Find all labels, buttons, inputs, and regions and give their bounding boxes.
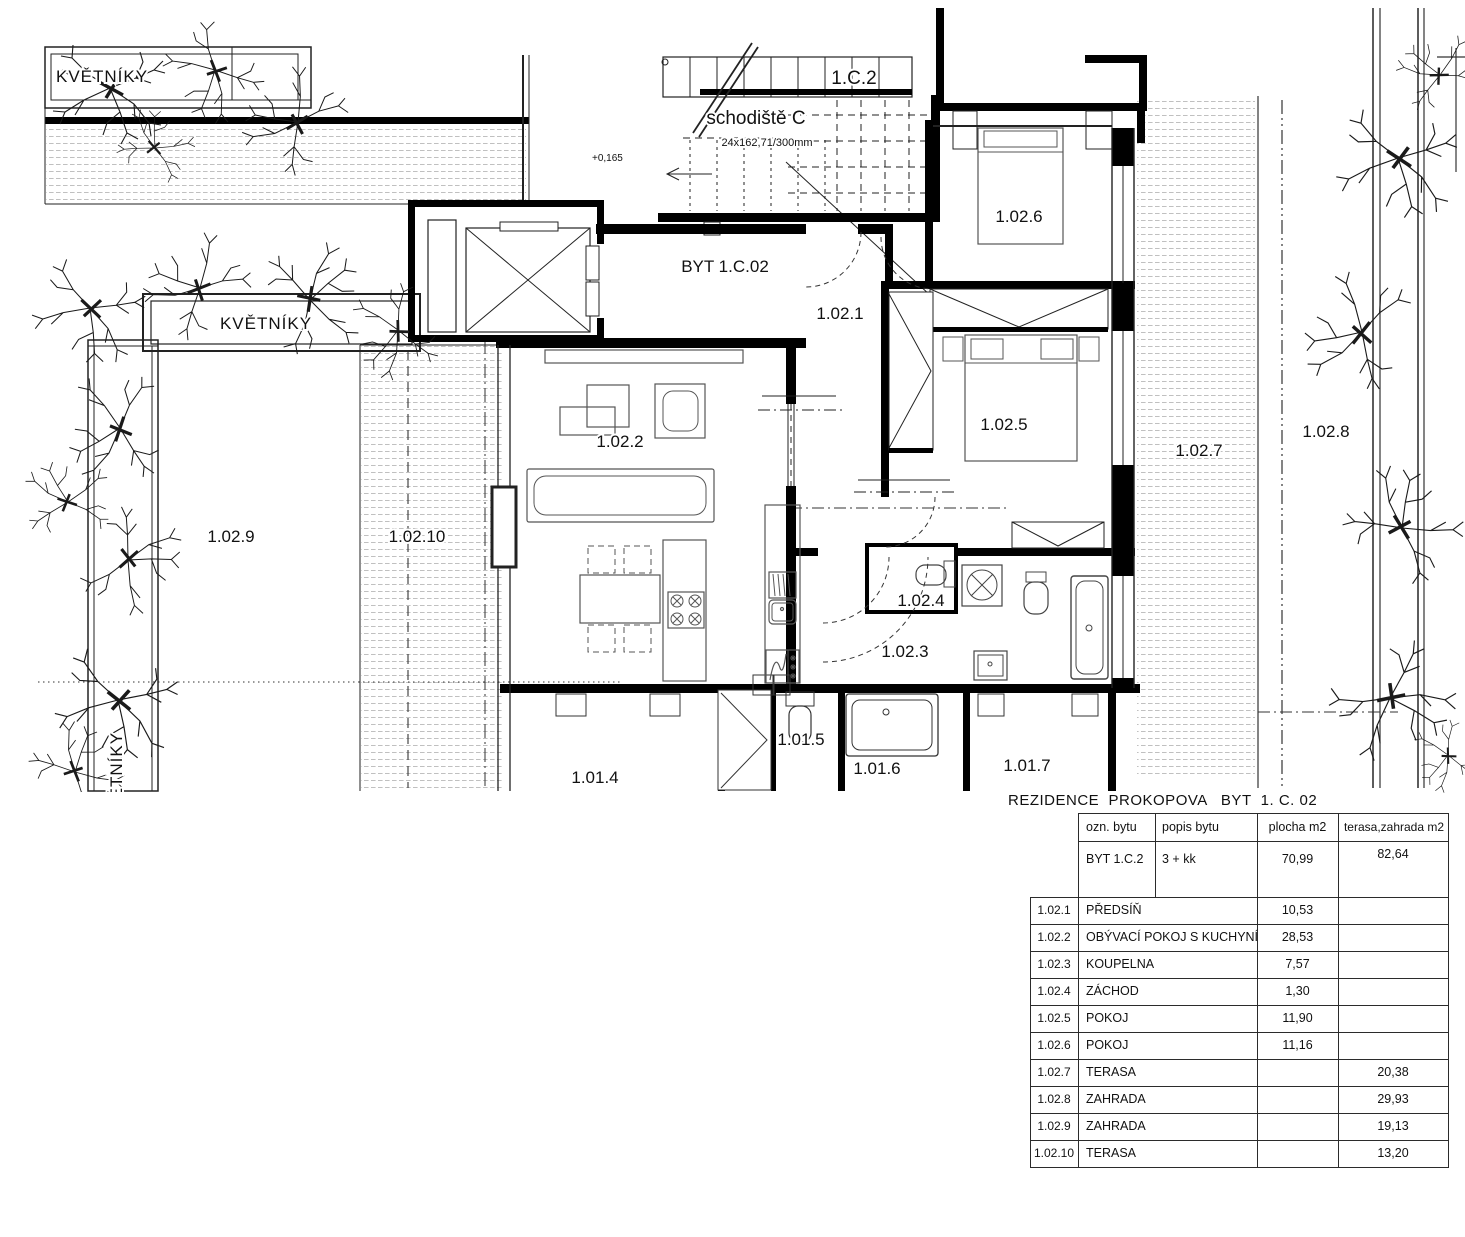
row-plocha: 1,30 bbox=[1257, 978, 1338, 1005]
summary-ozn: BYT 1.C.2 bbox=[1086, 846, 1143, 873]
row-terasa bbox=[1338, 1032, 1448, 1059]
room-label-1024: 1.02.4 bbox=[897, 591, 944, 610]
furniture-living bbox=[527, 350, 800, 683]
row-name: ZÁCHOD bbox=[1086, 978, 1139, 1005]
stair-spec-label: 24x162,71/300mm bbox=[721, 137, 812, 149]
room-label-1014: 1.01.4 bbox=[571, 768, 618, 787]
drawing-cut-mask bbox=[0, 792, 1006, 1237]
tree-icon bbox=[1333, 452, 1465, 594]
row-terasa: 20,38 bbox=[1338, 1059, 1448, 1086]
room-label-1028: 1.02.8 bbox=[1302, 422, 1349, 441]
room-label-1029: 1.02.9 bbox=[207, 527, 254, 546]
tree-icon bbox=[20, 453, 116, 541]
room-label-1021: 1.02.1 bbox=[816, 304, 863, 323]
room-label-1023: 1.02.3 bbox=[881, 642, 928, 661]
floor-plan-page: KVĚTNÍKY KVĚTNÍKY KVĚTNÍKY 1.C.2 schodiš… bbox=[0, 0, 1465, 1237]
stair-unit-label: 1.C.2 bbox=[831, 68, 876, 89]
row-plocha: 11,90 bbox=[1257, 1005, 1338, 1032]
summary-plocha: 70,99 bbox=[1257, 846, 1338, 873]
row-plocha bbox=[1257, 1059, 1338, 1086]
unit-label: BYT 1.C.02 bbox=[681, 257, 769, 276]
row-num: 1.02.8 bbox=[1030, 1086, 1078, 1113]
stair-name-label: schodiště C bbox=[706, 108, 805, 129]
row-plocha: 28,53 bbox=[1257, 924, 1338, 951]
level-mark-label: +0,165 bbox=[592, 153, 623, 164]
row-num: 1.02.4 bbox=[1030, 978, 1078, 1005]
table-line bbox=[1155, 813, 1156, 897]
row-name: TERASA bbox=[1086, 1059, 1136, 1086]
row-terasa bbox=[1338, 1005, 1448, 1032]
row-plocha bbox=[1257, 1113, 1338, 1140]
row-name: POKOJ bbox=[1086, 1005, 1128, 1032]
row-num: 1.02.7 bbox=[1030, 1059, 1078, 1086]
row-name: POKOJ bbox=[1086, 1032, 1128, 1059]
row-plocha bbox=[1257, 1140, 1338, 1167]
summary-terasa: 82,64 bbox=[1338, 841, 1448, 868]
row-num: 1.02.3 bbox=[1030, 951, 1078, 978]
row-name: PŘEDSÍŇ bbox=[1086, 897, 1142, 924]
row-plocha bbox=[1257, 1086, 1338, 1113]
row-plocha: 10,53 bbox=[1257, 897, 1338, 924]
row-terasa: 13,20 bbox=[1338, 1140, 1448, 1167]
row-num: 1.02.9 bbox=[1030, 1113, 1078, 1140]
row-name: TERASA bbox=[1086, 1140, 1136, 1167]
col-header-plocha: plocha m2 bbox=[1257, 814, 1338, 841]
room-label-1026: 1.02.6 bbox=[995, 207, 1042, 226]
room-label-10210: 1.02.10 bbox=[389, 527, 446, 546]
room-label-1027: 1.02.7 bbox=[1175, 441, 1222, 460]
floor-plan-drawing: KVĚTNÍKY KVĚTNÍKY KVĚTNÍKY 1.C.2 schodiš… bbox=[0, 0, 1465, 1237]
row-num: 1.02.10 bbox=[1030, 1140, 1078, 1167]
row-terasa bbox=[1338, 951, 1448, 978]
tree-icon bbox=[1297, 266, 1414, 393]
room-label-1022: 1.02.2 bbox=[596, 432, 643, 451]
row-terasa bbox=[1338, 924, 1448, 951]
row-terasa: 29,93 bbox=[1338, 1086, 1448, 1113]
planter-top-label: KVĚTNÍKY bbox=[56, 67, 148, 86]
tree-icon bbox=[74, 500, 192, 625]
tree-icon bbox=[1315, 626, 1465, 781]
room-label-1016: 1.01.6 bbox=[853, 759, 900, 778]
table-line bbox=[1030, 1167, 1449, 1168]
tree-icon bbox=[1387, 21, 1465, 120]
row-name: KOUPELNA bbox=[1086, 951, 1154, 978]
row-terasa bbox=[1338, 897, 1448, 924]
summary-popis: 3 + kk bbox=[1162, 846, 1196, 873]
row-name: OBÝVACÍ POKOJ S KUCHYNÍ bbox=[1086, 924, 1258, 951]
row-plocha: 11,16 bbox=[1257, 1032, 1338, 1059]
row-name: ZAHRADA bbox=[1086, 1113, 1146, 1140]
room-label-1017: 1.01.7 bbox=[1003, 756, 1050, 775]
row-terasa: 19,13 bbox=[1338, 1113, 1448, 1140]
row-plocha: 7,57 bbox=[1257, 951, 1338, 978]
row-num: 1.02.2 bbox=[1030, 924, 1078, 951]
row-num: 1.02.1 bbox=[1030, 897, 1078, 924]
elevator bbox=[408, 200, 605, 342]
room-label-1025: 1.02.5 bbox=[980, 415, 1027, 434]
col-header-terasa: terasa,zahrada m2 bbox=[1340, 814, 1448, 841]
row-name: ZAHRADA bbox=[1086, 1086, 1146, 1113]
row-num: 1.02.5 bbox=[1030, 1005, 1078, 1032]
table-title: REZIDENCE PROKOPOVA BYT 1. C. 02 bbox=[1008, 792, 1317, 809]
row-terasa bbox=[1338, 978, 1448, 1005]
col-header-ozn: ozn. bytu bbox=[1086, 814, 1137, 841]
col-header-popis: popis bytu bbox=[1162, 814, 1219, 841]
room-label-1015: 1.01.5 bbox=[777, 730, 824, 749]
row-num: 1.02.6 bbox=[1030, 1032, 1078, 1059]
tree-icon bbox=[1333, 108, 1459, 222]
tree-icon bbox=[58, 368, 169, 489]
planter-middle-label: KVĚTNÍKY bbox=[220, 314, 312, 333]
